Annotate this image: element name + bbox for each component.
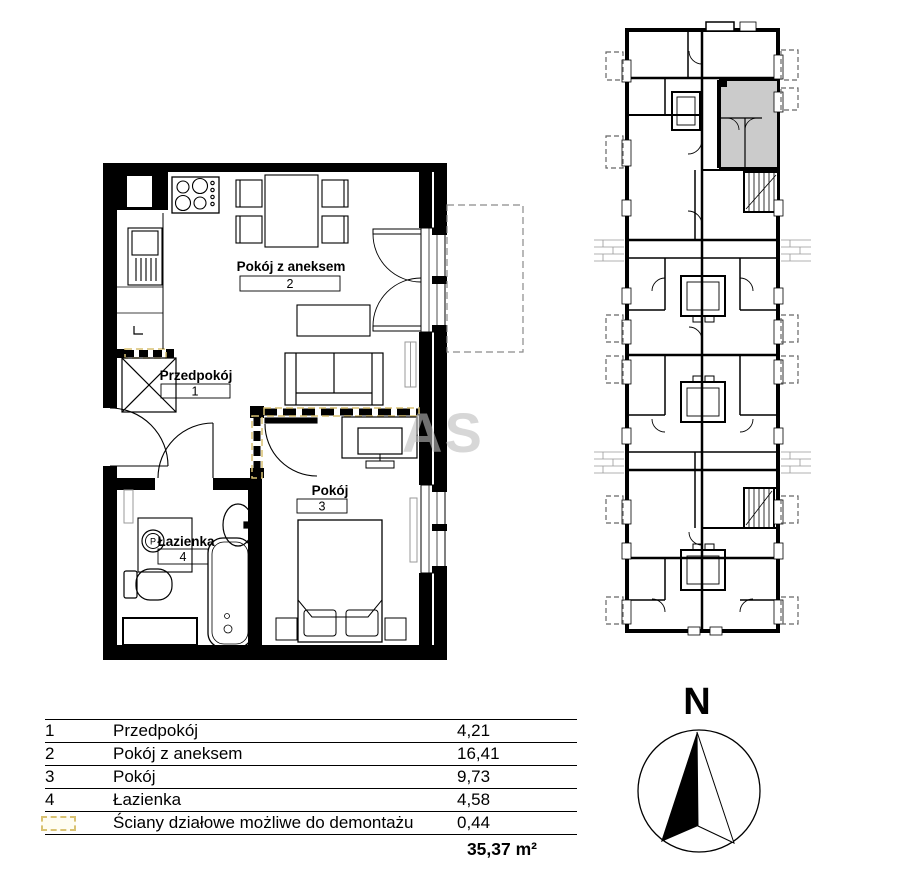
entrance-door <box>110 408 168 466</box>
balcony-door <box>373 228 447 332</box>
table-row: 1 Przedpokój 4,21 <box>45 720 577 743</box>
compass-needle-outline <box>697 732 734 843</box>
bath-cabinet <box>123 618 197 645</box>
row-name: Pokój <box>113 766 457 789</box>
compass-needle-filled <box>661 732 698 842</box>
fridge-icon <box>134 326 143 334</box>
north-label: N <box>683 681 710 723</box>
row-number: 4 <box>45 789 113 812</box>
highlighted-unit <box>720 80 778 168</box>
room-label-bath: Łazienka <box>157 534 215 549</box>
dining-table <box>265 175 318 247</box>
bedroom-door <box>265 418 317 476</box>
room-number-hall: 1 <box>192 385 199 399</box>
table-row-legend: Ściany działowe możliwe do demontażu 0,4… <box>45 812 577 835</box>
row-area: 16,41 <box>457 743 577 766</box>
area-table: 1 Przedpokój 4,21 2 Pokój z aneksem 16,4… <box>45 719 577 835</box>
row-area: 0,44 <box>457 812 577 835</box>
row-number: 1 <box>45 720 113 743</box>
room-label-bedroom: Pokój <box>312 483 349 498</box>
sofa <box>285 353 383 405</box>
staircase-top <box>744 172 778 212</box>
table-row: 4 Łazienka 4,58 <box>45 789 577 812</box>
row-name: Łazienka <box>113 789 457 812</box>
bathtub <box>208 538 252 648</box>
watermark: AS <box>402 401 484 464</box>
room-number-living: 2 <box>287 277 294 291</box>
bedroom-window <box>421 485 447 573</box>
row-area: 4,21 <box>457 720 577 743</box>
balcony-outline <box>447 205 523 352</box>
dining-set <box>236 175 348 247</box>
toilet-icon <box>124 569 172 600</box>
row-name: Ściany działowe możliwe do demontażu <box>113 812 457 835</box>
row-name: Przedpokój <box>113 720 457 743</box>
kitchen-sink-icon <box>128 228 162 285</box>
building-overview <box>594 22 811 635</box>
floorplan-page: { "plan": { "rooms": { "hall": {"label":… <box>0 0 898 872</box>
table-row: 2 Pokój z aneksem 16,41 <box>45 743 577 766</box>
bathroom-area <box>123 504 253 648</box>
radiator-bath <box>124 490 133 523</box>
demolishable-wall-swatch <box>41 816 76 831</box>
staircase-bottom <box>744 488 774 528</box>
nightstand-left <box>276 618 297 640</box>
row-area: 4,58 <box>457 789 577 812</box>
row-number: 2 <box>45 743 113 766</box>
bed <box>276 520 406 642</box>
total-area: 35,37 m² <box>45 839 577 860</box>
stove-icon <box>172 177 219 213</box>
washbasin-icon <box>223 504 253 546</box>
monitor-icon <box>358 428 402 454</box>
room-number-bedroom: 3 <box>319 500 326 514</box>
shaft-niche <box>127 176 152 207</box>
nightstand-right <box>385 618 406 640</box>
row-number: 3 <box>45 766 113 789</box>
coffee-table <box>297 305 370 336</box>
room-label-hall: Przedpokój <box>160 368 233 383</box>
wardrobe <box>122 358 176 412</box>
room-number-bath: 4 <box>180 550 187 564</box>
north-arrow: N <box>638 681 760 852</box>
row-area: 9,73 <box>457 766 577 789</box>
room-label-living: Pokój z aneksem <box>237 259 346 274</box>
apartment-plan: Pokój z aneksem 2 Przedpokój 1 Pokój 3 Ł… <box>103 163 523 660</box>
washer-mark: P <box>150 537 156 547</box>
table-row: 3 Pokój 9,73 <box>45 766 577 789</box>
row-name: Pokój z aneksem <box>113 743 457 766</box>
radiator-bedroom <box>410 498 417 562</box>
doors <box>110 408 317 478</box>
